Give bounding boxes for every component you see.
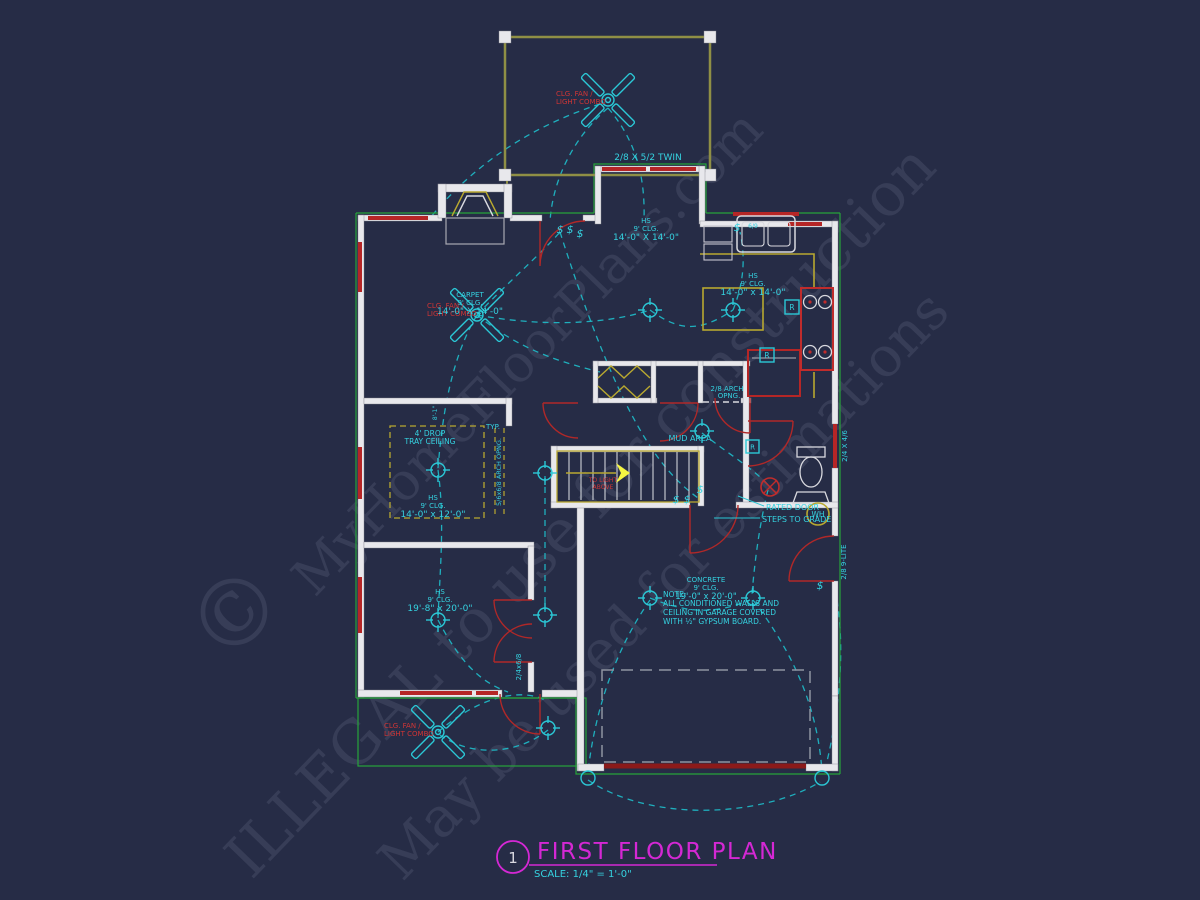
window-24x46-label: 2/4 X 4/6 (841, 430, 849, 462)
switch-symbol: $ (673, 493, 680, 506)
switch-symbol: $ (734, 221, 741, 234)
receptacle-symbol: R (764, 351, 769, 360)
switch-symbol: $ (697, 483, 704, 496)
bedroom-surface: HS (428, 494, 438, 502)
switch-symbol: $ (567, 223, 574, 236)
receptacle-symbol: R (750, 444, 755, 452)
cad-canvas: © MyHomeFloorPlans.com ILLEGAL to use fo… (0, 0, 1200, 900)
bonus-ceiling: 9' CLG. (427, 596, 452, 604)
sheet-number: 1 (508, 849, 518, 867)
bonus-dimension: 19'-8" x 20'-0" (407, 604, 472, 614)
living-ceiling: 9' CLG. (457, 299, 482, 307)
fireplace (438, 184, 512, 244)
floor-plan-drawing: © MyHomeFloorPlans.com ILLEGAL to use fo… (0, 0, 1200, 900)
garage-note-line3: CEILING IN GARAGE COVERED (663, 608, 776, 617)
stair-note-line1: TO LIGHT (588, 477, 618, 484)
switch-symbol: $ (577, 227, 584, 240)
exterior-light-icon (815, 771, 829, 785)
nook-dimension: 14'-0" X 14'-0" (613, 233, 679, 243)
steps-to-grade-label: STEPS TO GRADE (762, 515, 831, 524)
bonus-surface: HS (435, 588, 445, 596)
door-9lite-label: 2/8 9-LITE (840, 544, 848, 579)
bedroom-ceiling: 9' CLG. (420, 502, 445, 510)
nook-surface: HS (641, 217, 651, 225)
tray-label-line2: TRAY CEILING (403, 437, 455, 446)
mud-area-label: MUD AREA (668, 434, 712, 443)
bifold-closet-doors (598, 366, 650, 398)
garage-note-line1: NOTE: (663, 590, 686, 599)
garage-ceiling: 9' CLG. (693, 584, 718, 592)
fan-label-line2: LIGHT COMBO (556, 98, 606, 106)
receptacle-symbol: R (789, 303, 794, 312)
living-surface: CARPET (456, 291, 484, 299)
typ-label: TYP. (485, 423, 500, 431)
fan-label-line1: CLG. FAN / (384, 722, 421, 730)
living-dimension: 14'-0" X 14'-0" (437, 307, 503, 317)
arch-label-line2: OPNG. (718, 392, 741, 400)
stair-note-line2: ABOVE (593, 484, 614, 491)
garage-note-line4: WITH ½" GYPSUM BOARD. (663, 617, 761, 626)
switch-symbol: $ (684, 493, 691, 506)
rated-door-label: RATED DOOR (766, 503, 819, 512)
switch-symbol: $ (557, 223, 564, 236)
twin-window-label: 2/8 X 5/2 TWIN (614, 153, 682, 163)
garage-door (602, 670, 810, 766)
title-block: 1 FIRST FLOOR PLAN SCALE: 1/4" = 1'-0" (497, 839, 778, 880)
bedroom-dimension: 14'-0" x 12'-0" (400, 510, 465, 520)
arch-opening-side-label: 5/6x6/8 ARCH OPNG. (495, 438, 503, 506)
drawing-title: FIRST FLOOR PLAN (537, 839, 778, 865)
drawing-scale: SCALE: 1/4" = 1'-0" (534, 869, 632, 880)
garage-surface: CONCRETE (687, 576, 726, 584)
watermark-permission: May be used for estimations (366, 278, 961, 891)
watermark-layer: © MyHomeFloorPlans.com ILLEGAL to use fo… (165, 99, 961, 891)
fan-label-line1: CLG. FAN / (556, 90, 593, 98)
kitchen-dimension: 14'-0" x 14'-0" (720, 288, 785, 298)
dim-8-1-label: 8'-1" (432, 406, 439, 420)
kitchen-ceiling: 9' CLG. (740, 280, 765, 288)
door-24x68-label: 2/4x6/8 (515, 654, 523, 681)
kitchen-surface: HS (748, 272, 758, 280)
garage-note-line2: ALL CONDITIONED WALLS AND (663, 599, 779, 608)
sink-window-tag: 6/9 (748, 223, 758, 230)
exterior-light-icon (581, 771, 595, 785)
nook-ceiling: 9' CLG. (633, 225, 658, 233)
switch-symbol: $ (817, 579, 824, 592)
fan-label-line2: LIGHT COMBO (384, 730, 434, 738)
